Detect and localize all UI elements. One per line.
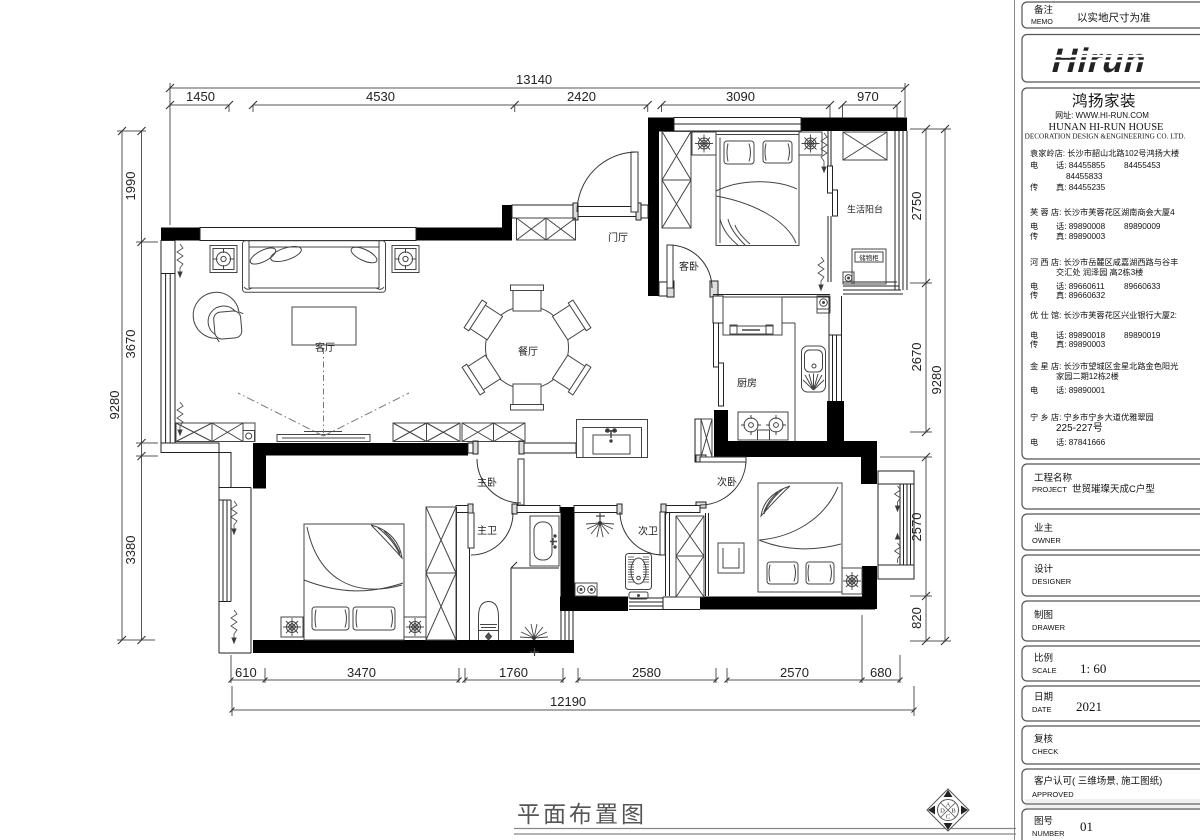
svg-text:2580: 2580 xyxy=(632,665,661,680)
svg-text:话: 89660611: 话: 89660611 xyxy=(1056,281,1105,291)
svg-text:袁家岭店: 长沙市韶山北路102号鸿扬大楼: 袁家岭店: 长沙市韶山北路102号鸿扬大楼 xyxy=(1030,148,1179,158)
svg-text:世贸璀璨天成C户型: 世贸璀璨天成C户型 xyxy=(1072,483,1155,495)
svg-text:HUNAN HI-RUN HOUSE: HUNAN HI-RUN HOUSE xyxy=(1049,122,1164,133)
svg-text:A: A xyxy=(946,802,951,809)
svg-text:客厅: 客厅 xyxy=(315,341,335,354)
svg-text:1: 60: 1: 60 xyxy=(1080,661,1106,676)
svg-text:图号: 图号 xyxy=(1034,816,1053,827)
svg-text:河 西 店: 长沙市岳麓区咸嘉湖西路与谷丰: 河 西 店: 长沙市岳麓区咸嘉湖西路与谷丰 xyxy=(1030,257,1178,267)
svg-text:1450: 1450 xyxy=(186,89,215,104)
svg-text:芙 蓉 店: 长沙市芙蓉花区湖南商会大厦4: 芙 蓉 店: 长沙市芙蓉花区湖南商会大厦4 xyxy=(1030,207,1175,217)
svg-text:820: 820 xyxy=(909,607,924,629)
svg-text:电: 电 xyxy=(1030,385,1038,395)
svg-text:储物柜: 储物柜 xyxy=(859,253,879,262)
svg-text:CHECK: CHECK xyxy=(1032,747,1058,756)
svg-text:次卧: 次卧 xyxy=(717,476,737,489)
svg-text:真: 89890003: 真: 89890003 xyxy=(1056,231,1106,241)
svg-text:生活阳台: 生活阳台 xyxy=(847,204,883,215)
svg-text:工程名称: 工程名称 xyxy=(1034,472,1073,484)
svg-text:鸿扬家装: 鸿扬家装 xyxy=(1072,92,1136,110)
svg-text:DECORATION DESIGN &ENGINEERI: DECORATION DESIGN &ENGINEERING CO. LTD. xyxy=(1025,133,1186,141)
svg-text:话: 87841666: 话: 87841666 xyxy=(1056,437,1106,447)
svg-text:B: B xyxy=(951,808,956,815)
svg-text:OWNER: OWNER xyxy=(1032,536,1061,545)
svg-text:复核: 复核 xyxy=(1034,733,1054,745)
svg-text:平面布置图: 平面布置图 xyxy=(517,801,647,827)
svg-text:主卧: 主卧 xyxy=(477,476,497,489)
svg-text:C: C xyxy=(946,814,950,821)
svg-text:设计: 设计 xyxy=(1034,563,1054,575)
svg-text:610: 610 xyxy=(235,665,257,680)
svg-text:真: 89660632: 真: 89660632 xyxy=(1056,290,1106,300)
svg-text:2670: 2670 xyxy=(909,343,924,372)
svg-text:12190: 12190 xyxy=(550,694,586,709)
svg-text:9280: 9280 xyxy=(107,391,122,420)
svg-text:DRAWER: DRAWER xyxy=(1032,623,1066,632)
svg-text:门厅: 门厅 xyxy=(608,231,628,244)
svg-text:9280: 9280 xyxy=(929,366,944,395)
svg-text:PROJECT: PROJECT xyxy=(1032,485,1067,494)
svg-text:1990: 1990 xyxy=(123,172,138,201)
svg-text:电: 电 xyxy=(1030,330,1038,340)
svg-text:宁 乡 店: 宁乡市宁乡大道优雅翠园: 宁 乡 店: 宁乡市宁乡大道优雅翠园 xyxy=(1030,412,1154,422)
svg-text:225-227号: 225-227号 xyxy=(1056,422,1103,434)
svg-text:客户认可( 三维场景, 施工图纸): 客户认可( 三维场景, 施工图纸) xyxy=(1034,775,1162,787)
svg-text:家园二期12栋2楼: 家园二期12栋2楼 xyxy=(1056,371,1119,381)
svg-text:4530: 4530 xyxy=(366,89,395,104)
svg-text:01: 01 xyxy=(1080,819,1093,834)
svg-text:传: 传 xyxy=(1030,290,1038,300)
svg-text:电: 电 xyxy=(1030,221,1038,231)
svg-text:日期: 日期 xyxy=(1034,692,1053,703)
svg-text:优 仕 馆: 长沙市芙蓉花区兴业银行大厦2:: 优 仕 馆: 长沙市芙蓉花区兴业银行大厦2: xyxy=(1030,310,1177,320)
svg-text:680: 680 xyxy=(870,665,892,680)
svg-text:电: 电 xyxy=(1030,160,1038,170)
svg-text:金 星 店: 长沙市望城区金星北路金色阳光: 金 星 店: 长沙市望城区金星北路金色阳光 xyxy=(1030,361,1178,371)
svg-text:3470: 3470 xyxy=(347,665,376,680)
svg-text:制图: 制图 xyxy=(1034,609,1053,621)
svg-text:2021: 2021 xyxy=(1076,699,1102,714)
svg-text:13140: 13140 xyxy=(516,72,552,87)
svg-text:传: 传 xyxy=(1030,339,1038,349)
svg-text:电: 电 xyxy=(1030,437,1038,447)
svg-text:备注: 备注 xyxy=(1034,4,1054,16)
svg-text:DATE: DATE xyxy=(1032,705,1051,714)
svg-text:2570: 2570 xyxy=(780,665,809,680)
svg-text:MEMO: MEMO xyxy=(1031,19,1053,26)
svg-text:次卫: 次卫 xyxy=(638,525,658,538)
svg-text:89660633: 89660633 xyxy=(1124,282,1161,291)
svg-text:话: 84455855: 话: 84455855 xyxy=(1056,160,1106,170)
svg-text:厨房: 厨房 xyxy=(737,377,757,390)
svg-text:3380: 3380 xyxy=(123,536,138,565)
svg-text:970: 970 xyxy=(857,89,879,104)
svg-text:交汇处 润泽园 高2栋3楼: 交汇处 润泽园 高2栋3楼 xyxy=(1056,267,1143,277)
svg-text:以实地尺寸为准: 以实地尺寸为准 xyxy=(1077,11,1151,24)
svg-text:APPROVED: APPROVED xyxy=(1032,790,1074,799)
svg-text:传: 传 xyxy=(1030,231,1038,241)
svg-text:客卧: 客卧 xyxy=(679,260,699,273)
svg-text:传: 传 xyxy=(1030,182,1038,192)
svg-text:话: 89890008: 话: 89890008 xyxy=(1056,221,1106,231)
svg-text:1760: 1760 xyxy=(499,665,528,680)
svg-text:89890019: 89890019 xyxy=(1124,331,1161,340)
svg-text:主卫: 主卫 xyxy=(477,525,497,537)
svg-text:话: 89890001: 话: 89890001 xyxy=(1056,385,1106,395)
svg-text:SCALE: SCALE xyxy=(1032,666,1057,675)
svg-text:餐厅: 餐厅 xyxy=(518,345,538,358)
svg-text:3670: 3670 xyxy=(123,330,138,359)
svg-text:2420: 2420 xyxy=(567,89,596,104)
svg-text:真: 89890003: 真: 89890003 xyxy=(1056,339,1106,349)
svg-text:2570: 2570 xyxy=(909,513,924,542)
svg-text:84455833: 84455833 xyxy=(1066,172,1103,181)
svg-text:话: 89890018: 话: 89890018 xyxy=(1056,330,1106,340)
svg-text:84455453: 84455453 xyxy=(1124,161,1161,170)
svg-text:NUMBER: NUMBER xyxy=(1032,829,1065,838)
svg-text:2750: 2750 xyxy=(909,192,924,221)
svg-text:3090: 3090 xyxy=(726,89,755,104)
svg-text:D: D xyxy=(940,808,945,815)
svg-text:电: 电 xyxy=(1030,281,1038,291)
svg-text:比例: 比例 xyxy=(1034,652,1053,664)
svg-text:真: 84455235: 真: 84455235 xyxy=(1056,182,1106,192)
svg-text:业主: 业主 xyxy=(1034,522,1053,534)
svg-text:网址: WWW.HI-RUN.COM: 网址: WWW.HI-RUN.COM xyxy=(1055,110,1149,120)
svg-text:89890009: 89890009 xyxy=(1124,222,1161,231)
svg-text:DESIGNER: DESIGNER xyxy=(1032,577,1072,586)
